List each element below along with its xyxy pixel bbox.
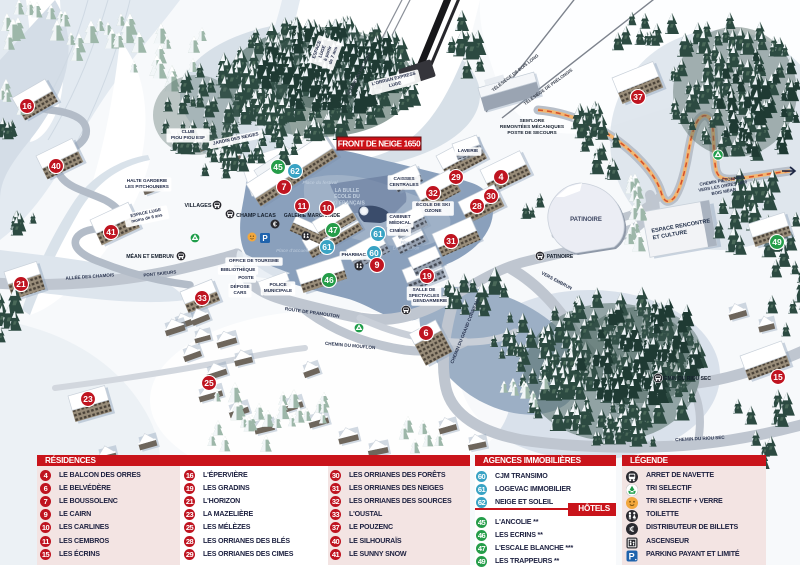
svg-text:4: 4 <box>498 172 503 182</box>
svg-text:19: 19 <box>422 271 432 281</box>
svg-text:32: 32 <box>428 188 438 198</box>
svg-text:41: 41 <box>106 227 116 237</box>
svg-text:P: P <box>262 234 268 243</box>
svg-text:GENDARMERIE: GENDARMERIE <box>413 298 447 303</box>
svg-text:16: 16 <box>22 101 32 111</box>
svg-text:33: 33 <box>197 293 207 303</box>
svg-text:29: 29 <box>451 172 461 182</box>
svg-text:31: 31 <box>446 236 456 246</box>
svg-text:47: 47 <box>328 225 338 235</box>
svg-text:OFFICE DE TOURISME: OFFICE DE TOURISME <box>229 258 279 263</box>
svg-text:PATINOIRE: PATINOIRE <box>547 254 574 260</box>
svg-text:28: 28 <box>472 201 482 211</box>
svg-text:BIBLIOTHÈQUE: BIBLIOTHÈQUE <box>221 265 256 272</box>
svg-text:MÉAN ET EMBRUN: MÉAN ET EMBRUN <box>126 252 174 260</box>
svg-text:CHEMIN DU RIOU SEC: CHEMIN DU RIOU SEC <box>657 376 711 382</box>
svg-text:21: 21 <box>16 279 26 289</box>
svg-text:10: 10 <box>322 203 332 213</box>
svg-text:40: 40 <box>51 161 61 171</box>
svg-text:7: 7 <box>281 182 286 192</box>
svg-text:POSTE: POSTE <box>238 275 254 280</box>
svg-text:PATINOIRE: PATINOIRE <box>570 217 602 223</box>
svg-text:46: 46 <box>324 275 334 285</box>
svg-text:Place du festival: Place du festival <box>303 180 339 186</box>
svg-text:62: 62 <box>290 166 300 176</box>
svg-text:60: 60 <box>369 248 379 258</box>
svg-text:49: 49 <box>772 237 782 247</box>
svg-text:30: 30 <box>486 191 496 201</box>
svg-text:6: 6 <box>423 328 428 338</box>
svg-text:9: 9 <box>374 260 379 270</box>
svg-text:15: 15 <box>773 372 783 382</box>
svg-text:SALLE DESPECTACLES: SALLE DESPECTACLES <box>409 287 440 298</box>
svg-text:Place d'accueil: Place d'accueil <box>276 248 309 254</box>
svg-text:45: 45 <box>273 162 283 172</box>
svg-text:61: 61 <box>322 242 332 252</box>
svg-text:23: 23 <box>83 394 93 404</box>
svg-text:LAVERIE: LAVERIE <box>458 148 479 154</box>
svg-text:VILLAGES: VILLAGES <box>185 203 212 209</box>
svg-text:CHAMP LACAS: CHAMP LACAS <box>236 213 276 219</box>
svg-text:FRONT DE NEIGE 1650: FRONT DE NEIGE 1650 <box>338 140 421 149</box>
svg-text:25: 25 <box>204 378 214 388</box>
svg-text:HALTE GARDERIELES PITCHOUNERS: HALTE GARDERIELES PITCHOUNERS <box>125 178 169 189</box>
svg-text:11: 11 <box>298 201 307 211</box>
svg-text:€: € <box>273 222 277 229</box>
svg-text:61: 61 <box>373 229 383 239</box>
svg-text:37: 37 <box>633 92 643 102</box>
